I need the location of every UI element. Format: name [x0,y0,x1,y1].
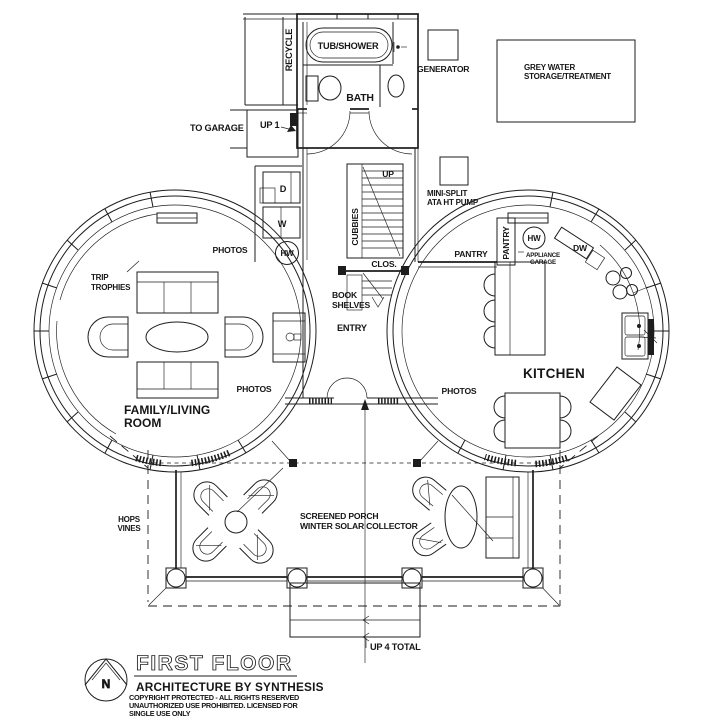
sofa-bottom [137,362,218,398]
porch-chair-group-left [187,468,283,569]
pantry-wall-label: PANTRY [454,249,488,259]
pantry-cabinet-label: PANTRY [501,226,511,260]
bath-label: BATH [346,92,374,104]
porch-label-2: WINTER SOLAR COLLECTOR [300,521,419,531]
mini-split-label-2: ATA HT PUMP [427,198,479,207]
title-block: N FIRST FLOOR ARCHITECTURE BY SYNTHESIS … [85,652,324,718]
hall-walls [303,148,418,398]
mini-split-box [440,157,468,185]
north-letter: N [102,677,111,691]
kitchen-desk [590,367,641,420]
entry-steps [290,583,420,648]
left-circle-window-hatch [136,458,161,463]
photos-sw-label: PHOTOS [237,384,272,394]
trip-trophies-label-1: TRIP [91,273,109,282]
closet-label: CLOS. [371,259,396,269]
washer-label: W [278,219,287,229]
sink-window [648,319,654,355]
book-shelves-label-1: BOOK [332,290,358,300]
photos-nw-label: PHOTOS [213,245,248,255]
porch-side-table [225,511,247,533]
grey-water-label-1: GREY WATER [524,63,575,72]
floor-plan-drawing: RECYCLE TUB/SHOWER GENERATOR GREY WATER … [0,0,702,726]
recycle-label: RECYCLE [284,29,294,72]
porch-oval-table [445,486,477,548]
shelf-arc [57,321,116,434]
north-symbol: N [85,659,127,701]
family-living-label-2: ROOM [124,416,161,430]
porch-columns [166,568,543,588]
appliance-garage-label-2: GARAGE [530,259,556,266]
generator-label: GENERATOR [417,64,470,74]
trip-trophies-label-2: TROPHIES [91,283,131,292]
up-label: UP [382,169,394,179]
appliance-garage-label-1: APPLIANCE [526,252,560,259]
left-circle-window-hatch [191,453,229,463]
coffee-table [146,322,208,352]
photos-kitchen-label: PHOTOS [442,386,477,396]
stairs [338,164,409,310]
hops-vines-label-1: HOPS [118,515,141,524]
porch-label-1: SCREENED PORCH [300,511,378,521]
right-roundhouse [387,190,669,472]
bath-sink [380,65,404,107]
hw-kitchen-label: HW [528,234,542,243]
cubbies-label: CUBBIES [350,208,360,246]
firm-name: ARCHITECTURE BY SYNTHESIS [136,680,324,694]
bath-block [297,14,418,148]
kitchen-island [484,262,545,355]
entry-label: ENTRY [337,323,367,333]
screened-porch [152,441,556,648]
book-shelves-label-2: SHELVES [332,300,371,310]
mini-split-label-1: MINI-SPLIT [427,189,468,198]
armchair-left [88,317,128,357]
toilet [306,76,341,101]
central-core [230,14,438,663]
armchair-right [225,317,263,357]
family-room-furniture [88,261,263,398]
floor-plan-canvas: RECYCLE TUB/SHOWER GENERATOR GREY WATER … [0,0,702,726]
left-roundhouse [34,190,316,472]
kitchen-label: KITCHEN [523,366,585,381]
porch-chair-group-right [407,472,519,561]
tub-shower-label: TUB/SHOWER [318,41,379,51]
copyright-line-3: SINGLE USE ONLY [129,709,191,718]
up-4-total-label: UP 4 TOTAL [370,642,421,652]
hw-laundry-label: HW [281,249,295,258]
porch-sofa [486,477,519,558]
dryer-label: D [280,184,287,194]
garage-landing [230,110,298,157]
sofa-top [137,272,218,313]
grey-water-label-2: STORAGE/TREATMENT [524,72,611,81]
generator-box [428,30,458,60]
hall-niche [273,313,305,362]
left-circle-top-window [157,213,197,223]
trophy-leader [127,261,139,272]
to-garage-label: TO GARAGE [190,123,244,133]
right-circle-wall-ticks [458,192,669,470]
family-living-label-1: FAMILY/LIVING [124,403,210,417]
sheet-title: FIRST FLOOR [136,652,293,675]
dishwasher-label: DW [573,243,588,253]
site-equipment [428,30,635,185]
up-1-label: UP 1 [260,120,280,130]
grey-water-box [497,40,635,122]
kitchen-table [494,393,571,448]
laundry-closet [255,166,302,265]
hops-vines-label-2: VINES [117,524,141,533]
